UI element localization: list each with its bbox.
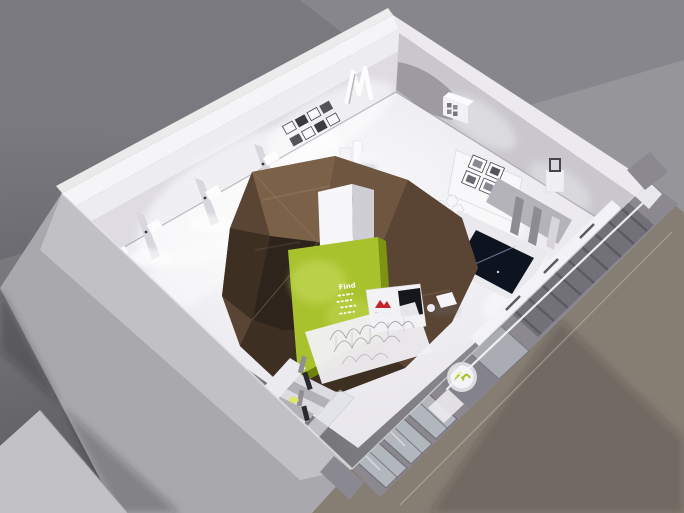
render-canvas: Find bbox=[0, 0, 684, 513]
showroom-3d-render: Find bbox=[0, 0, 684, 513]
green-panel-sheen bbox=[290, 260, 346, 304]
mini-frame bbox=[447, 110, 452, 115]
pedestal bbox=[546, 170, 564, 192]
bay-display-item bbox=[145, 231, 148, 234]
mini-frame bbox=[447, 103, 452, 108]
sculpture-light bbox=[289, 397, 299, 403]
store-logo-sign bbox=[447, 362, 477, 392]
mini-frame bbox=[453, 112, 458, 117]
chair bbox=[427, 304, 435, 312]
bay-display-item bbox=[262, 163, 265, 166]
frame-matte bbox=[551, 160, 559, 170]
mini-frame bbox=[453, 105, 458, 110]
bay-display-item bbox=[204, 197, 207, 200]
screen-spark bbox=[497, 271, 499, 273]
bay-spotlight bbox=[188, 215, 232, 233]
